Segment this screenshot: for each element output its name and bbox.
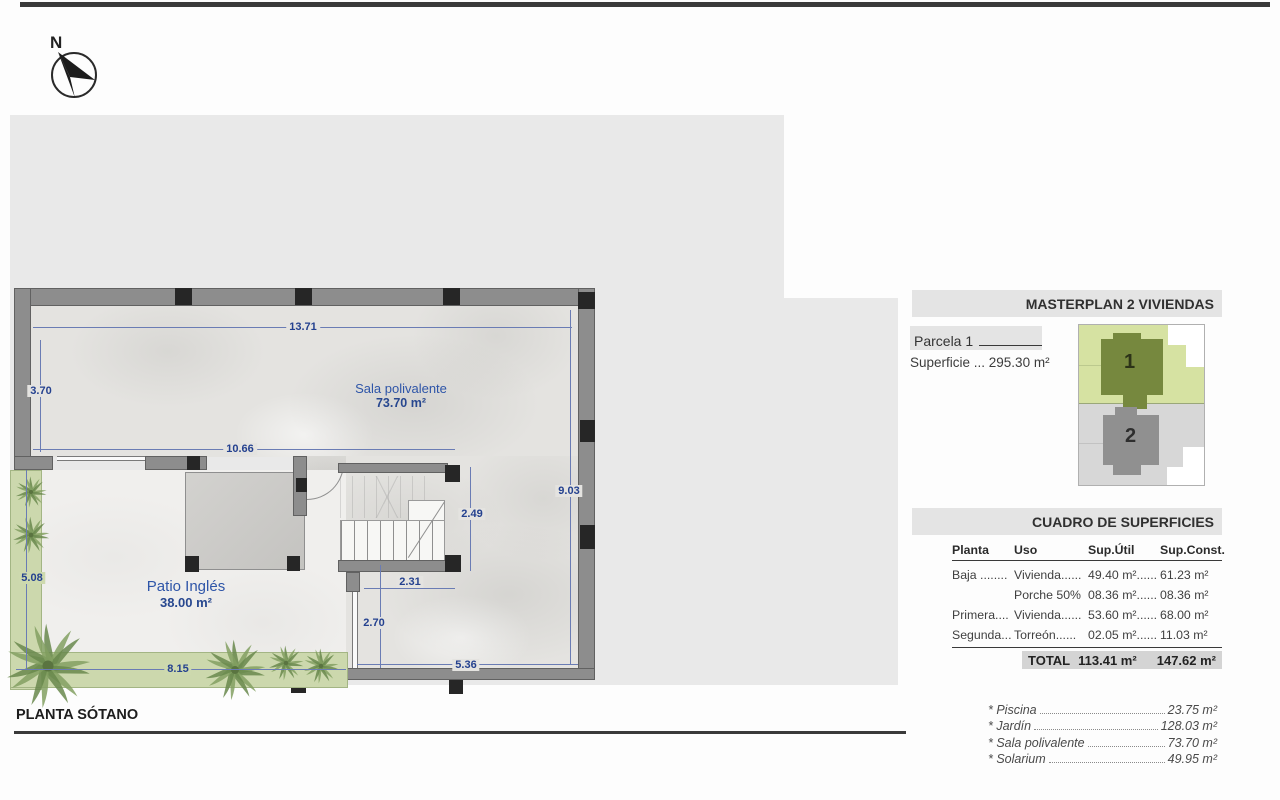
dim-window: 2.70 [360, 617, 387, 629]
room-name: Patio Inglés [147, 578, 225, 595]
plan-title: PLANTA SÓTANO [16, 707, 138, 723]
surfaces-table: Planta Uso Sup.Útil Sup.Const. Baja ....… [952, 540, 1222, 648]
parcela-box: Parcela 1 [910, 326, 1042, 350]
col-uso: Uso [1014, 543, 1088, 557]
table-header-row: Planta Uso Sup.Útil Sup.Const. [952, 540, 1222, 560]
wall-stair-bottom [338, 560, 448, 572]
backdrop-upper [10, 115, 784, 300]
dim-line [364, 588, 455, 589]
parcel-line [1079, 365, 1103, 366]
pillar [287, 556, 300, 571]
total-const: 147.62 m² [1157, 653, 1216, 668]
palm-tree-icon [302, 647, 340, 685]
extra-value: 128.03 m² [1161, 719, 1217, 733]
stair-landing [408, 500, 445, 522]
dim-stair-w: 2.31 [396, 576, 423, 588]
house-1-number: 1 [1124, 351, 1144, 375]
table-rule [952, 560, 1222, 561]
parcel-line [1079, 443, 1103, 444]
window-sala-south [57, 456, 145, 461]
parcela-label: Parcela 1 [914, 333, 973, 349]
pillar [443, 288, 460, 305]
cell-util: 49.40 m²...... [1088, 568, 1160, 582]
cell-const: 11.03 m² [1160, 628, 1222, 642]
cell-uso: Porche 50% [1014, 588, 1088, 602]
cell-uso: Torreón...... [1014, 628, 1088, 642]
col-const: Sup.Const. [1160, 543, 1222, 557]
room-name: Sala polivalente [355, 381, 447, 396]
wall-left [14, 288, 31, 470]
wall-stair-top [338, 463, 448, 473]
cell-const: 61.23 m² [1160, 568, 1222, 582]
cell-uso: Vivienda...... [1014, 608, 1088, 622]
cell-util: 53.60 m²...... [1088, 608, 1160, 622]
room-area: 73.70 m² [355, 396, 447, 410]
pillar [580, 420, 595, 442]
dim-right: 9.03 [555, 485, 582, 497]
dim-garden-left: 5.08 [18, 572, 45, 584]
extra-name: * Sala polivalente [988, 736, 1085, 750]
table-row: Porche 50% 08.36 m²...... 08.36 m² [952, 585, 1222, 605]
extra-value: 73.70 m² [1168, 736, 1217, 750]
pillar [187, 456, 200, 470]
room-label-patio: Patio Inglés 38.00 m² [147, 578, 225, 610]
palm-tree-icon [2, 620, 94, 712]
pillar [449, 680, 463, 694]
dim-top: 13.71 [286, 321, 320, 333]
pillar [578, 292, 595, 309]
dotted-leader [1040, 713, 1165, 714]
dim-bottom-right: 5.36 [452, 659, 479, 671]
table-rule [952, 647, 1222, 648]
col-planta: Planta [952, 543, 1014, 557]
table-row: Primera.... Vivienda...... 53.60 m².....… [952, 605, 1222, 625]
house-2-step [1113, 465, 1141, 475]
pillar [175, 288, 192, 305]
extra-value: 23.75 m² [1168, 703, 1217, 717]
pillar [185, 556, 199, 572]
wall-left-corner [14, 456, 53, 470]
dim-stair-h: 2.49 [458, 508, 485, 520]
dim-line [26, 470, 27, 670]
plan-title-rule [14, 731, 906, 734]
cell-util: 08.36 m²...... [1088, 588, 1160, 602]
total-util: 113.41 m² [1078, 653, 1137, 668]
window-lower-room [352, 592, 358, 668]
cell-planta: Segunda... [952, 628, 1014, 642]
house-1-step [1113, 333, 1141, 341]
house-2-step [1115, 407, 1137, 417]
dotted-leader [1088, 746, 1165, 747]
cell-const: 08.36 m² [1160, 588, 1222, 602]
list-item: * Jardín 128.03 m² [988, 717, 1217, 734]
cell-planta: Primera.... [952, 608, 1014, 622]
list-item: * Sala polivalente 73.70 m² [988, 733, 1217, 750]
house-2-number: 2 [1125, 425, 1145, 449]
site-notch [1167, 467, 1184, 485]
cuadro-header: CUADRO DE SUPERFICIES [912, 508, 1222, 535]
list-item: * Solarium 49.95 m² [988, 750, 1217, 767]
table-row: Segunda... Torreón...... 02.05 m²...... … [952, 625, 1222, 645]
site-notch [1186, 345, 1204, 367]
pillar [580, 525, 595, 549]
dotted-leader [1034, 729, 1158, 730]
palm-tree-icon [267, 644, 305, 682]
cell-uso: Vivienda...... [1014, 568, 1088, 582]
extra-name: * Piscina [988, 703, 1037, 717]
room-area: 38.00 m² [147, 595, 225, 610]
top-border-rule [20, 2, 1270, 7]
table-row: Baja ........ Vivienda...... 49.40 m²...… [952, 565, 1222, 585]
wall-stub-below-stair [346, 572, 360, 592]
parcela-fill-line [979, 345, 1042, 346]
extra-name: * Solarium [988, 752, 1046, 766]
dim-left-upper: 3.70 [27, 385, 54, 397]
cell-const: 68.00 m² [1160, 608, 1222, 622]
dim-inner-width: 10.66 [223, 443, 257, 455]
palm-tree-icon [11, 515, 51, 555]
site-notch [1168, 325, 1204, 345]
pillar [445, 555, 461, 572]
extra-name: * Jardín [988, 719, 1031, 733]
superficie-text: Superficie ... 295.30 m² [910, 355, 1050, 370]
dim-garden-bottom: 8.15 [164, 663, 191, 675]
cell-planta: Baja ........ [952, 568, 1014, 582]
site-notch [1183, 447, 1204, 485]
list-item: * Piscina 23.75 m² [988, 700, 1217, 717]
extras-list: * Piscina 23.75 m² * Jardín 128.03 m² * … [988, 700, 1217, 766]
plan-sheet: N [0, 0, 1280, 800]
total-bar: TOTAL 113.41 m² 147.62 m² [1022, 651, 1222, 669]
room-label-sala: Sala polivalente 73.70 m² [355, 381, 447, 410]
extra-value: 49.95 m² [1168, 752, 1217, 766]
palm-tree-icon [202, 637, 268, 703]
cell-util: 02.05 m²...... [1088, 628, 1160, 642]
col-util: Sup.Útil [1088, 543, 1160, 557]
total-label: TOTAL [1028, 653, 1070, 668]
site-diagram: 1 2 [1078, 324, 1205, 486]
pillar [445, 465, 460, 482]
palm-tree-icon [14, 475, 48, 509]
wall-right [578, 288, 595, 680]
masterplan-header: MASTERPLAN 2 VIVIENDAS [912, 290, 1222, 317]
north-arrow-icon [48, 48, 100, 104]
dotted-leader [1049, 762, 1165, 763]
pillar [295, 288, 312, 305]
pillar [296, 478, 307, 492]
